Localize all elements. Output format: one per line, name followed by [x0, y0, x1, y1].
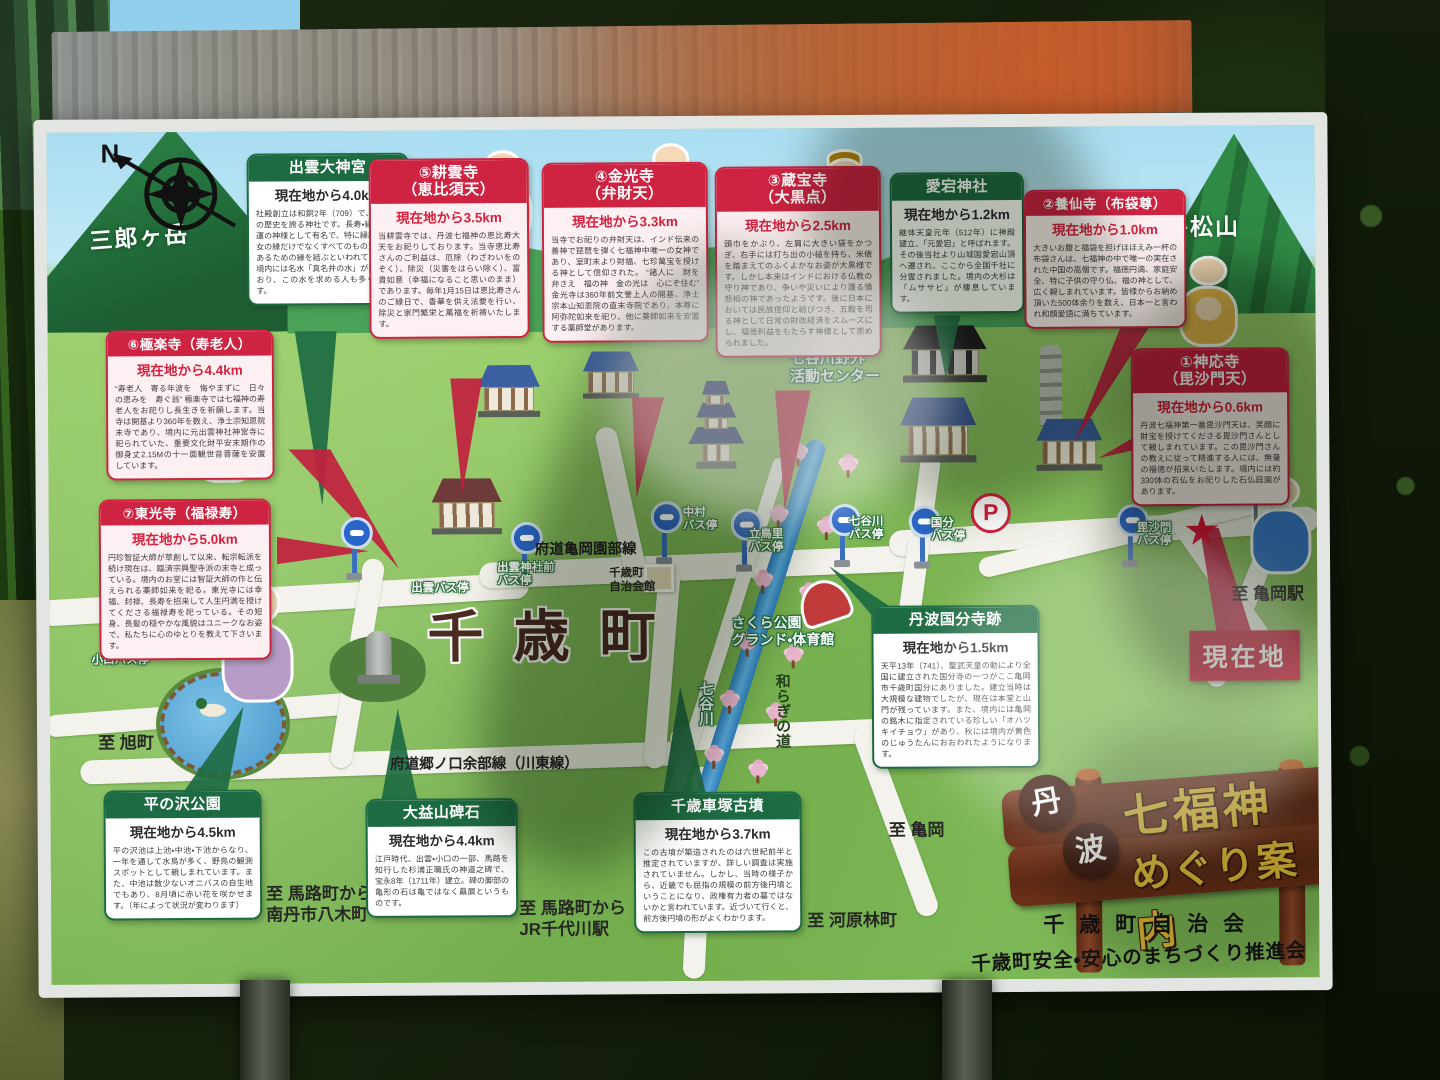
- info-box-zohoji: ③蔵宝寺（大黒点） 現在地から2.5km 頭巾をかぶり、左肩に大きい袋をかつぎ、…: [715, 166, 882, 358]
- info-box-konkoji: ④金光寺（弁財天） 現在地から3.3km 当寺でお祀りの弁財天は、インド伝来の善…: [542, 162, 709, 343]
- bus-stop-label: 立鳥里 バス停: [749, 528, 784, 555]
- parking-icon: P: [971, 493, 1011, 533]
- bus-stop-label: 七谷川 バス停: [849, 516, 884, 543]
- temple-building: [1036, 418, 1102, 470]
- river-label: 七谷川: [696, 681, 714, 726]
- road-name-label: 府道亀岡園部線: [535, 537, 637, 559]
- info-box-gokurakuji: ⑥極楽寺（寿老人） 現在地から4.4km “寿老人 寄る年波を 悔やまずに 日々…: [106, 329, 275, 480]
- info-title: 愛宕神社: [894, 179, 1020, 197]
- board-leg: [942, 980, 992, 1080]
- info-title: 丹波国分寺跡: [875, 612, 1035, 630]
- info-body: 継体天皇元年（512年）に神殿建立、「元愛宕」と呼ばれます。その後当社より山城国…: [892, 225, 1023, 312]
- tree-foliage: [1325, 0, 1440, 1080]
- stone-stupa: [1040, 345, 1063, 427]
- board-leg: [240, 980, 290, 1080]
- info-body: 当耕雲寺では、丹波七福神の恵比寿大天をお祀りしております。当寺恵比寿さんのご利益…: [371, 228, 528, 337]
- direction-label-kameoka-station: 至 亀岡駅: [1231, 583, 1304, 605]
- info-body: 当寺でお祀りの弁財天は、インド伝来の善神で琵琶を弾く七福神中唯一の女神であり、室…: [544, 231, 707, 340]
- info-distance: 現在地から2.5km: [717, 210, 879, 236]
- info-body: 江戸時代、出雲・小口の一部、馬路を知行した杉浦正職氏の神道之碑で、宝永8年（17…: [368, 851, 516, 916]
- info-distance: 現在地から4.5km: [106, 817, 260, 843]
- info-body: 平の沢池は上池・中池・下池からなり、一年を通して水鳥が多く、野鳥の観測スポットと…: [106, 842, 260, 918]
- road-name-label: 府道郷ノ口余部線（川東線）: [390, 752, 579, 774]
- current-location-marker: 現在地: [1189, 630, 1299, 681]
- pagoda-tower: [688, 381, 745, 469]
- info-distance: 現在地から0.6km: [1133, 392, 1287, 418]
- direction-label-chiyokawa: 至 馬路町から JR千代川駅: [519, 897, 626, 940]
- info-distance: 現在地から1.0km: [1026, 215, 1184, 241]
- title-sign: 丹 波 七福神 めぐり案内 千歳町自治会 千歳町安全・安心のまちづくり推進会議: [46, 125, 1314, 133]
- duck-head: [196, 698, 207, 709]
- guide-map-board: 三郎ヶ岳 牛松山 N: [33, 112, 1332, 998]
- bus-stop-label: 中村 バス停: [683, 507, 718, 534]
- info-box-tanba-kokubunji: 丹波国分寺跡 現在地から1.5km 天平13年（741）、聖武天皇の勅により全国…: [871, 605, 1040, 769]
- info-distance: 現在地から5.0km: [101, 525, 269, 551]
- info-distance: 現在地から3.3km: [544, 206, 706, 232]
- info-title: 千歳車塚古墳: [637, 798, 797, 816]
- info-title: 大益山碑石: [370, 805, 514, 823]
- facility-label-community-hall: 千歳町 自治会館: [609, 567, 655, 595]
- info-box-daiekisan: 大益山碑石 現在地から4.4km 江戸時代、出雲・小口の一部、馬路を知行した杉浦…: [365, 798, 518, 918]
- info-title: ②養仙寺（布袋尊）: [1028, 196, 1182, 212]
- info-title: ⑤耕雲寺: [373, 165, 525, 183]
- info-distance: 現在地から1.5km: [873, 633, 1037, 659]
- town-name-label: 千歳町: [427, 591, 685, 674]
- bus-stop-label: 国分 バス停: [931, 517, 966, 544]
- bus-stop-label: 毘沙門 バス停: [1137, 522, 1172, 549]
- info-title: ④金光寺: [546, 169, 704, 187]
- signboard-photo: 三郎ヶ岳 牛松山 N: [0, 0, 1440, 1080]
- info-box-hiranosawa: 平の沢公園 現在地から4.5km 平の沢池は上池・中池・下池からなり、一年を通し…: [103, 790, 262, 921]
- riverside-path-label: 和らぎの道: [772, 673, 793, 748]
- monument-base: [358, 675, 400, 684]
- info-body: 大きいお腹と福袋を担げほほえみ一杯の布袋さんは、七福神の中で唯一の実在された中国…: [1026, 240, 1185, 327]
- bus-stop-icon: [341, 517, 367, 580]
- info-title: ⑥極楽寺（寿老人）: [110, 337, 270, 353]
- pavilion-building: [432, 478, 502, 534]
- info-body: 頭巾をかぶり、左肩に大きい袋をかつぎ、右手には打ち出の小槌を持ち、米俵を踏まえて…: [717, 235, 880, 355]
- info-body: 丹波七福神第一番毘沙門天は、笑顔に財宝を授けてくださる毘沙門さんとして親しまれて…: [1133, 417, 1288, 504]
- info-box-tokoji: ⑦東光寺（福禄寿） 現在地から5.0km 円珍智証大師が草創して以来、転宗転派を…: [99, 499, 272, 661]
- hotei-character: [1179, 258, 1238, 344]
- direction-label-yagicho: 至 馬路町から 南丹市八木町: [266, 883, 373, 926]
- info-title: ⑦東光寺（福禄寿）: [103, 506, 267, 522]
- info-box-kounji: ⑤耕雲寺（恵比須天） 現在地から3.5km 当耕雲寺では、丹波七福神の恵比寿大天…: [369, 158, 530, 339]
- info-body: “寿老人 寄る年波を 悔やまずに 日々の恵みを 寿ぐ翁” 極楽寺では七福神の寿老…: [108, 381, 273, 479]
- sign-org2: 千歳町安全・安心のまちづくり推進会議: [970, 933, 1319, 985]
- sign-org1: 千歳町自治会: [1043, 907, 1259, 938]
- info-title: ③蔵宝寺: [719, 173, 877, 191]
- info-box-atago-jinja: 愛宕神社 現在地から1.2km 継体天皇元年（512年）に神殿建立、「元愛宕」と…: [890, 172, 1025, 314]
- info-title: 平の沢公園: [107, 797, 257, 815]
- cherry-blossoms: [46, 125, 1314, 133]
- temple-building: [583, 351, 639, 398]
- temple-main-hall: [900, 397, 976, 462]
- info-distance: 現在地から3.5km: [371, 203, 527, 229]
- daiekisan-stone-monument: [365, 631, 391, 677]
- compass-north-label: N: [100, 138, 119, 168]
- info-distance: 現在地から1.2km: [892, 200, 1022, 226]
- direction-label-asahicho: 至 旭町: [98, 732, 154, 754]
- info-body: 天平13年（741）、聖武天皇の勅により全国に建立された国分寺の一つがここ亀岡市…: [874, 658, 1039, 767]
- info-distance: 現在地から4.4km: [368, 826, 516, 852]
- info-body: 円珍智証大師が草創して以来、転宗転派を続け現在は、臨済宗興聖寺派の末寺と成ってい…: [101, 550, 270, 659]
- info-box-yosenji: ②養仙寺（布袋尊） 現在地から1.0km 大きいお腹と福袋を担げほほえみ一杯の布…: [1024, 189, 1187, 329]
- info-box-kurumazuka: 千歳車塚古墳 現在地から3.7km この古墳が築造されたのは六世紀前半と推定され…: [633, 791, 802, 933]
- direction-label-kameoka: 至 亀岡: [889, 819, 945, 841]
- facility-label-sakura-park: さくら公園 グランド・体育館: [731, 614, 834, 648]
- direction-label-kawarabayashi: 至 河原林町: [807, 910, 897, 932]
- info-body: この古墳が築造されたのは六世紀前半と推定されていますが、詳しい調査は実施されてい…: [636, 844, 801, 931]
- bus-stop-icon: [651, 501, 677, 564]
- illustrated-map: 三郎ヶ岳 牛松山 N: [46, 125, 1319, 985]
- info-distance: 現在地から3.7km: [636, 819, 800, 845]
- bus-stop-label: 出雲神社前 バス停: [497, 562, 555, 589]
- compass-icon: N: [98, 136, 239, 247]
- info-title: ①神応寺: [1135, 354, 1285, 372]
- info-box-jinnoji: ①神応寺（毘沙門天） 現在地から0.6km 丹波七福神第一番毘沙門天は、笑顔に財…: [1131, 347, 1290, 506]
- info-distance: 現在地から4.4km: [108, 356, 272, 382]
- temple-building: [478, 365, 540, 417]
